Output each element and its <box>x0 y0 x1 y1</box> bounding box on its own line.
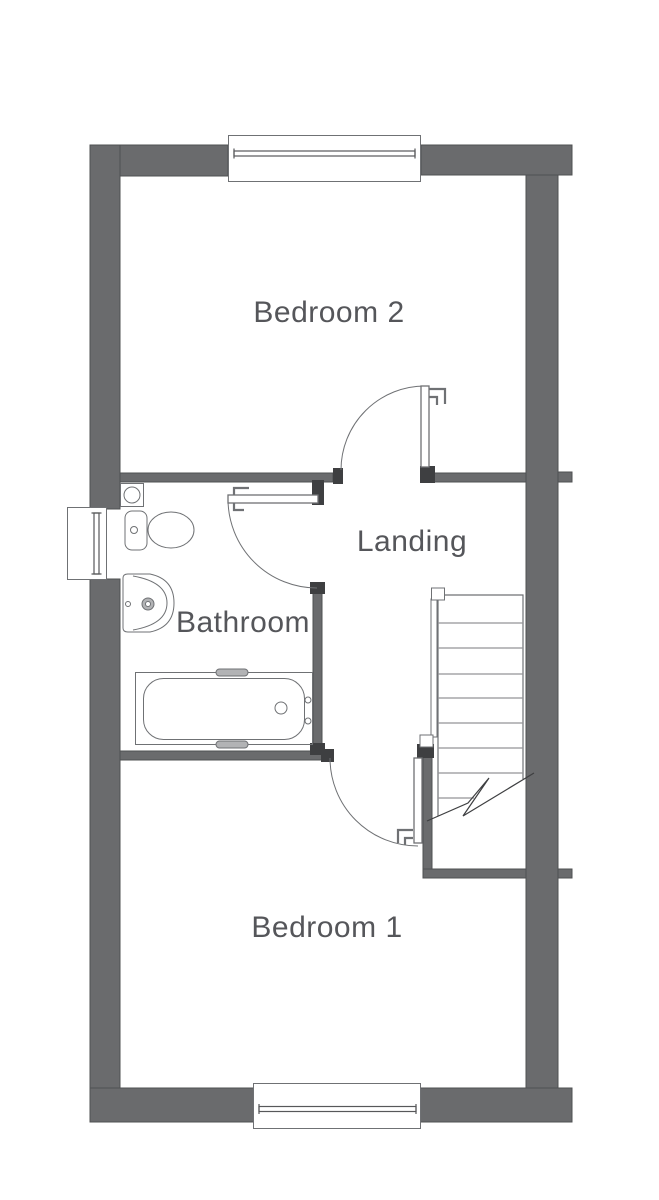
door-swing-arc <box>341 386 425 470</box>
tub-tap <box>305 718 311 724</box>
bedroom2-label: Bedroom 2 <box>253 296 404 329</box>
staircase <box>420 588 534 821</box>
door-swing-arc <box>330 758 418 846</box>
stair-treads <box>438 623 523 798</box>
bathtub <box>136 669 313 748</box>
washbasin <box>123 574 174 632</box>
toilet-bowl <box>148 512 194 548</box>
door-leaf <box>414 758 422 843</box>
toilet <box>125 511 194 550</box>
toilet-cistern <box>125 511 147 550</box>
bedroom1-label: Bedroom 1 <box>251 911 402 944</box>
exterior-walls <box>90 145 572 1122</box>
tub-grab-handle <box>216 669 248 676</box>
window-top <box>229 136 421 182</box>
floor-plan-page: Bedroom 2 Landing Bathroom Bedroom 1 <box>0 0 659 1200</box>
tub-tap <box>305 697 311 703</box>
door-bedroom2 <box>341 386 445 470</box>
door-handle <box>429 389 445 405</box>
window-bottom <box>254 1084 421 1129</box>
party-wall-stub-lower <box>558 869 572 878</box>
door-leaf <box>421 386 429 467</box>
extractor-icon <box>124 487 140 503</box>
door-bedroom1 <box>330 758 422 846</box>
door-handle <box>398 830 413 845</box>
landing-label: Landing <box>357 525 467 558</box>
tub-basin <box>144 679 305 740</box>
stair-stringers <box>438 595 523 816</box>
door-bathroom <box>228 488 318 588</box>
tub-surround <box>136 673 313 745</box>
basin-tap <box>126 602 131 607</box>
floor-plan: Bedroom 2 Landing Bathroom Bedroom 1 <box>0 0 659 1200</box>
flush-button <box>131 527 138 534</box>
boiler-unit <box>121 484 144 507</box>
bathroom-label: Bathroom <box>176 606 310 639</box>
door-leaf <box>228 495 318 503</box>
door-swing-arc <box>228 499 317 588</box>
window-left <box>68 508 107 580</box>
tub-drain <box>275 702 287 714</box>
stair-break-line <box>427 773 534 821</box>
tub-grab-handle <box>216 741 248 748</box>
party-wall-stub-upper <box>558 472 572 482</box>
